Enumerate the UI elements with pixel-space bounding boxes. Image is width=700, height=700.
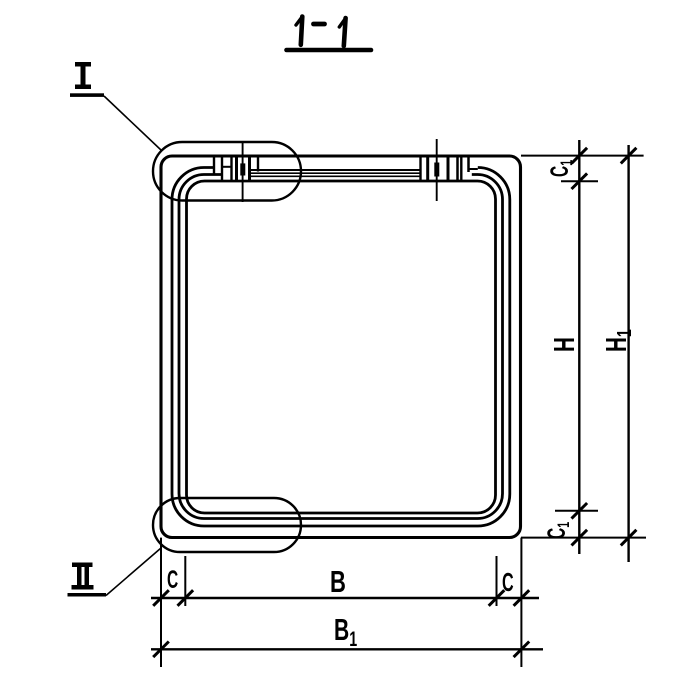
svg-text:B: B <box>330 564 346 599</box>
svg-text:C: C <box>502 567 514 597</box>
svg-text:C: C <box>167 566 178 594</box>
svg-text:H: H <box>549 337 581 352</box>
